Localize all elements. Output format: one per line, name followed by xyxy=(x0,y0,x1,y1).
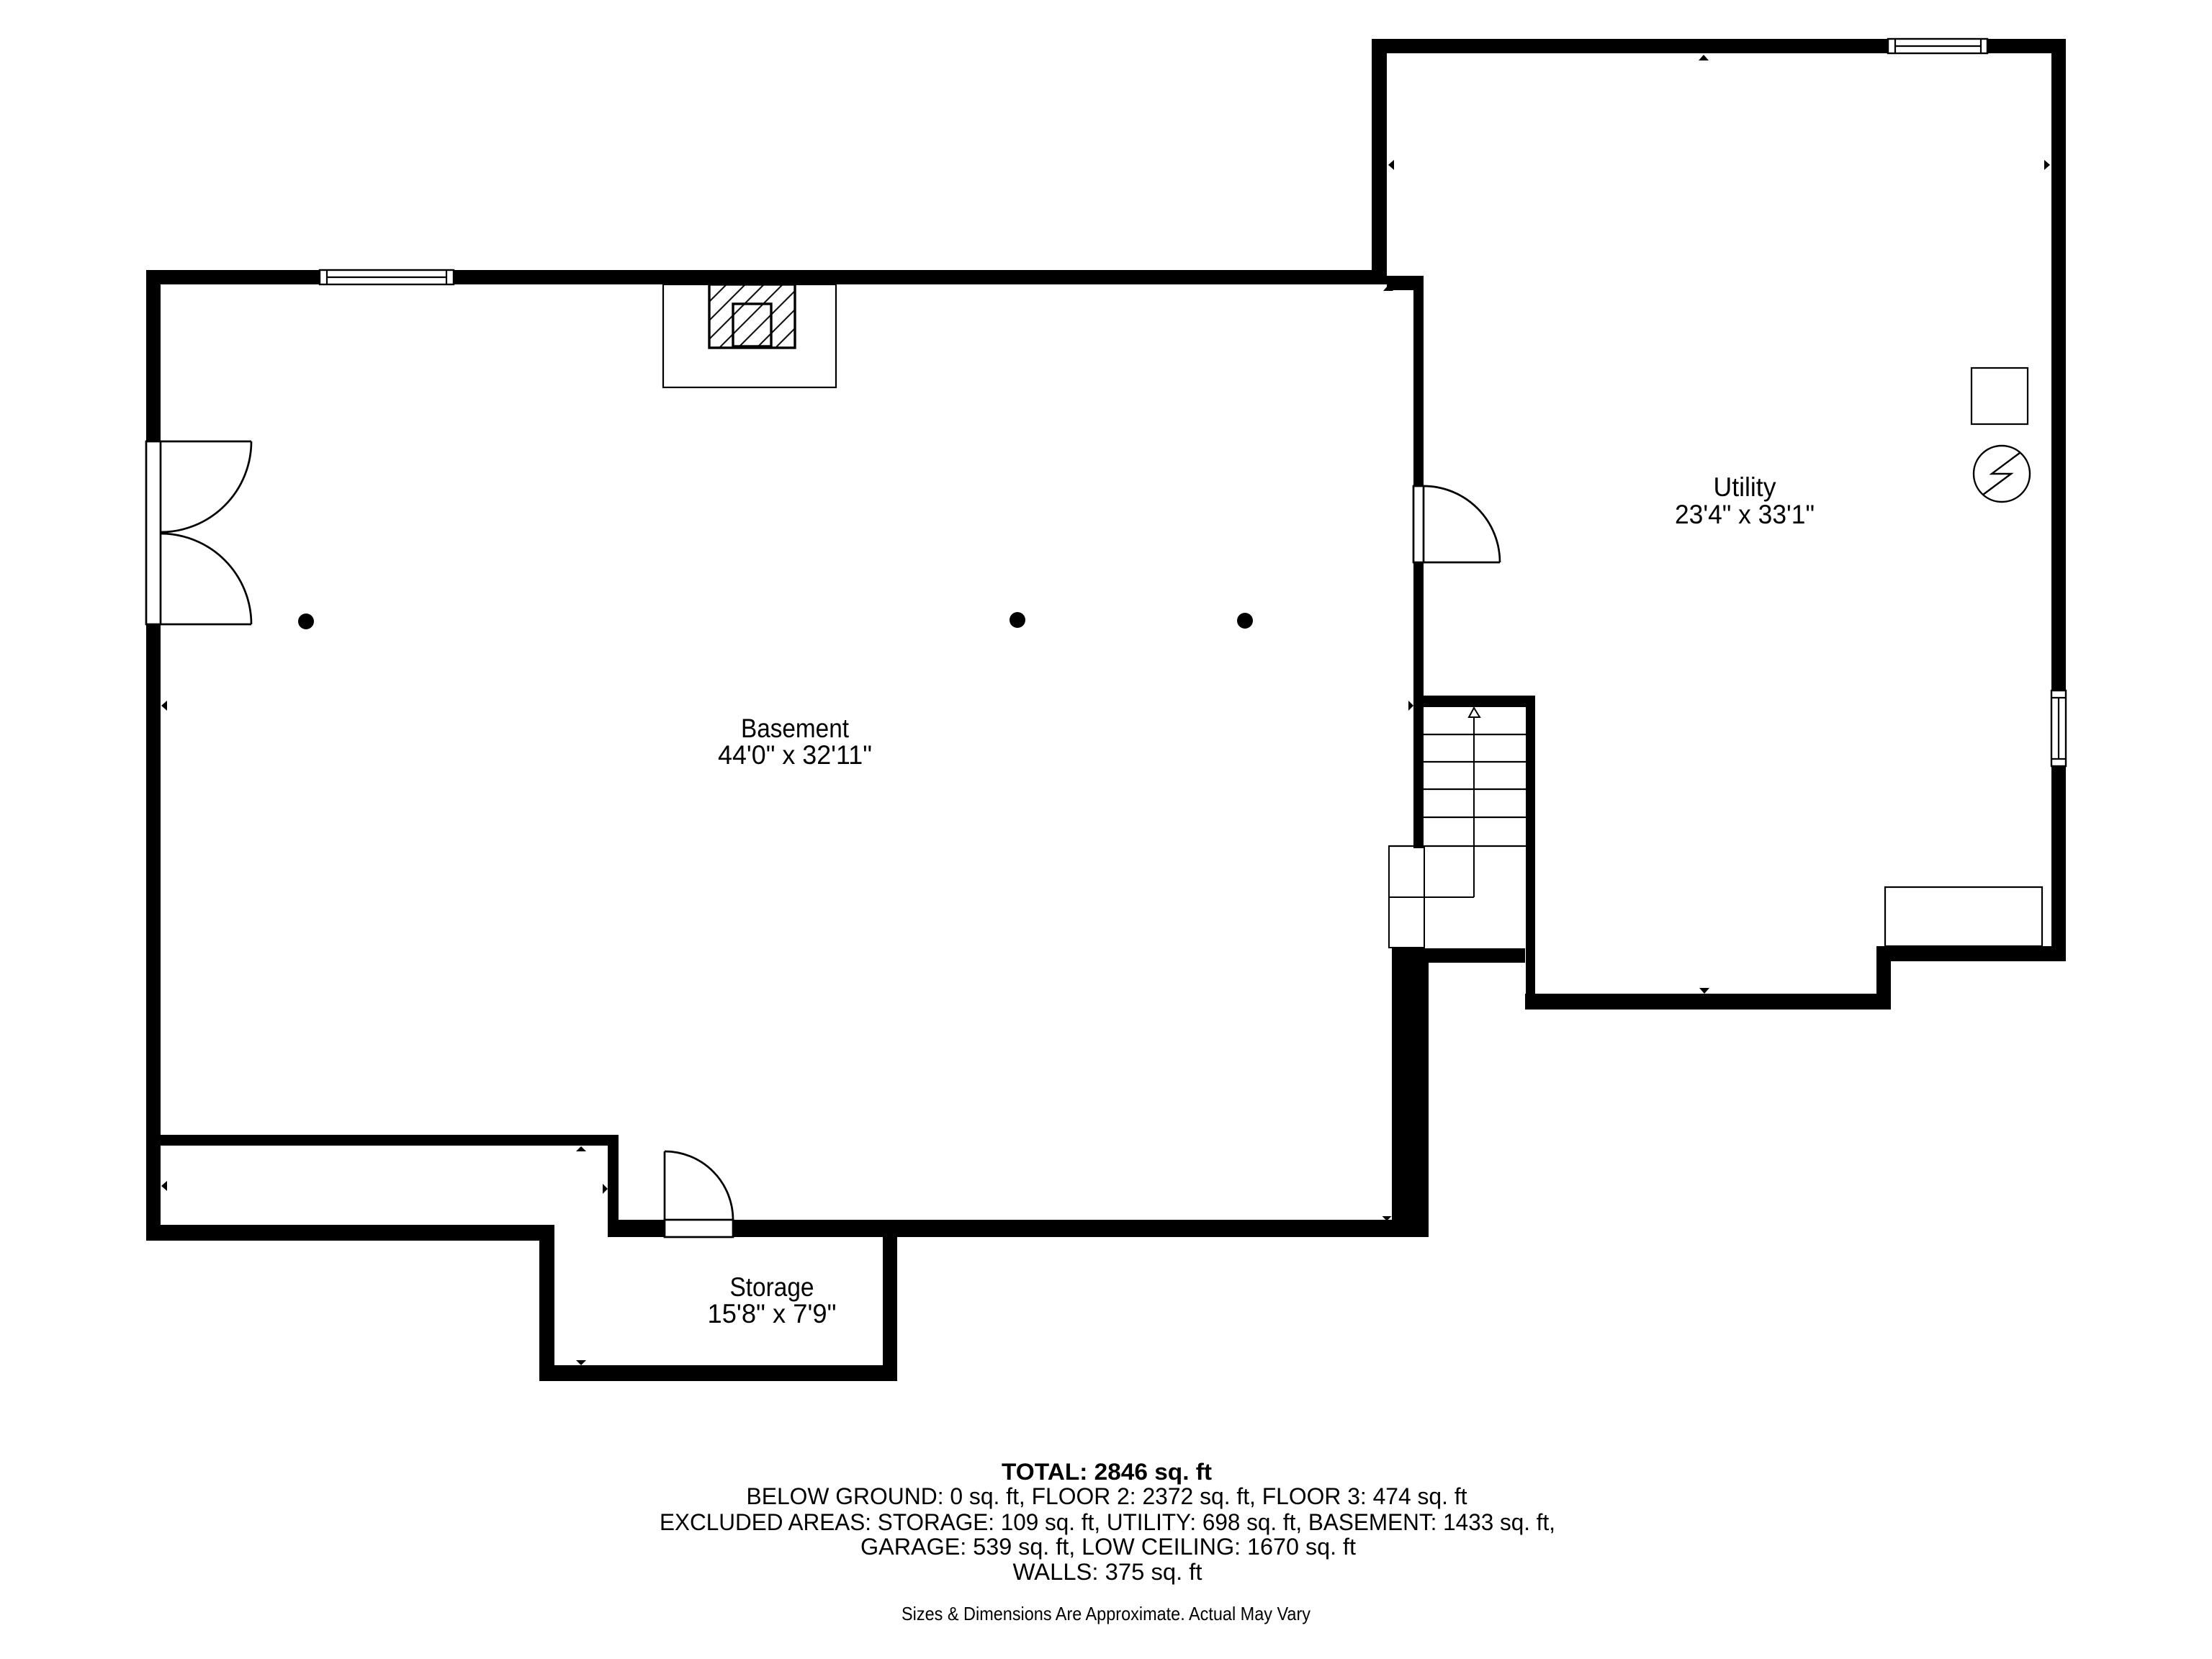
svg-text:Utility: Utility xyxy=(1714,472,1776,502)
svg-text:TOTAL: 2846 sq. ft: TOTAL: 2846 sq. ft xyxy=(1002,1459,1212,1485)
svg-text:BELOW GROUND: 0 sq. ft, FLOOR: BELOW GROUND: 0 sq. ft, FLOOR 2: 2372 sq… xyxy=(747,1483,1467,1509)
svg-text:Sizes & Dimensions Are Approxi: Sizes & Dimensions Are Approximate. Actu… xyxy=(902,1603,1310,1624)
svg-text:GARAGE: 539 sq. ft, LOW CEILIN: GARAGE: 539 sq. ft, LOW CEILING: 1670 sq… xyxy=(860,1534,1356,1560)
svg-text:15'8" x 7'9": 15'8" x 7'9" xyxy=(708,1299,837,1328)
svg-text:EXCLUDED AREAS: STORAGE: 109 s: EXCLUDED AREAS: STORAGE: 109 sq. ft, UTI… xyxy=(660,1509,1555,1535)
svg-text:WALLS: 375 sq. ft: WALLS: 375 sq. ft xyxy=(1013,1559,1202,1585)
svg-text:44'0" x 32'11": 44'0" x 32'11" xyxy=(718,740,872,770)
svg-text:23'4" x 33'1": 23'4" x 33'1" xyxy=(1675,500,1815,529)
svg-text:Storage: Storage xyxy=(730,1272,814,1302)
svg-text:Basement: Basement xyxy=(741,714,850,743)
